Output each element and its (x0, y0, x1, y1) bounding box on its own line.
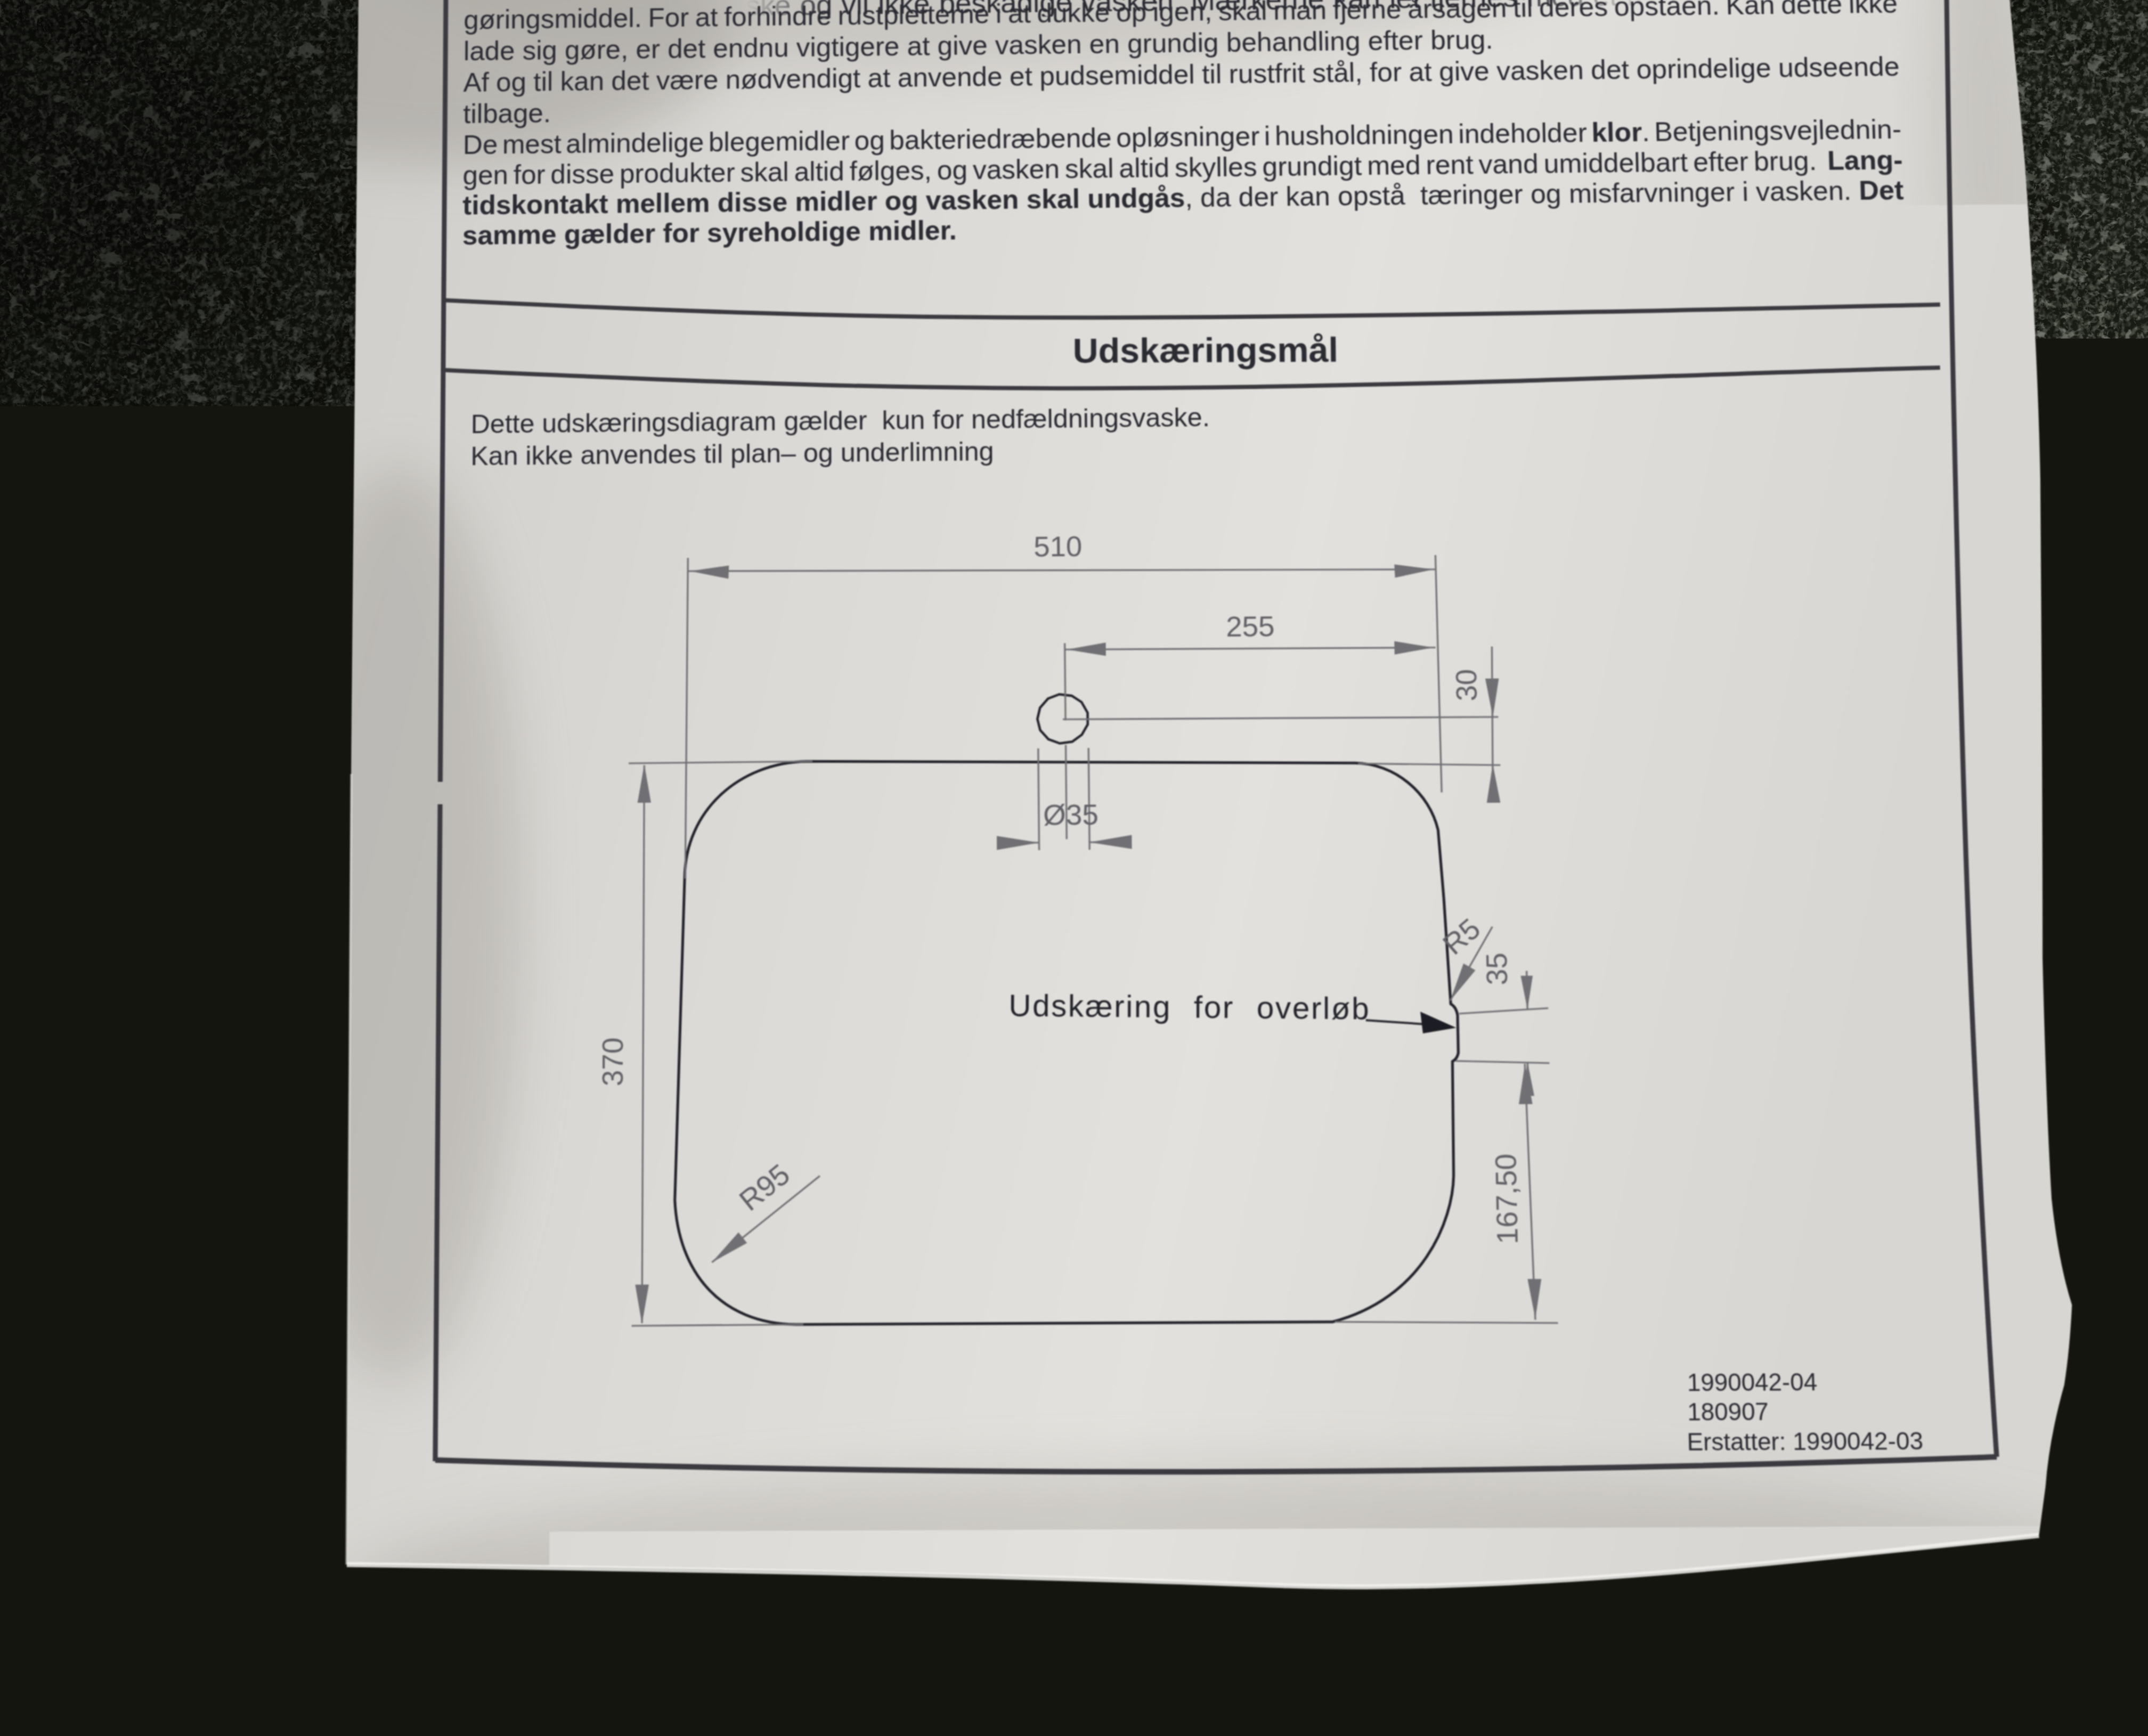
svg-text:35: 35 (1480, 952, 1514, 985)
svg-text:Ø35: Ø35 (1043, 798, 1099, 832)
svg-text:255: 255 (1226, 610, 1275, 643)
svg-text:167,50: 167,50 (1490, 1154, 1525, 1244)
svg-text:510: 510 (1034, 531, 1083, 563)
svg-text:R95: R95 (733, 1158, 796, 1218)
svg-text:30: 30 (1450, 669, 1484, 702)
svg-text:370: 370 (597, 1037, 630, 1086)
